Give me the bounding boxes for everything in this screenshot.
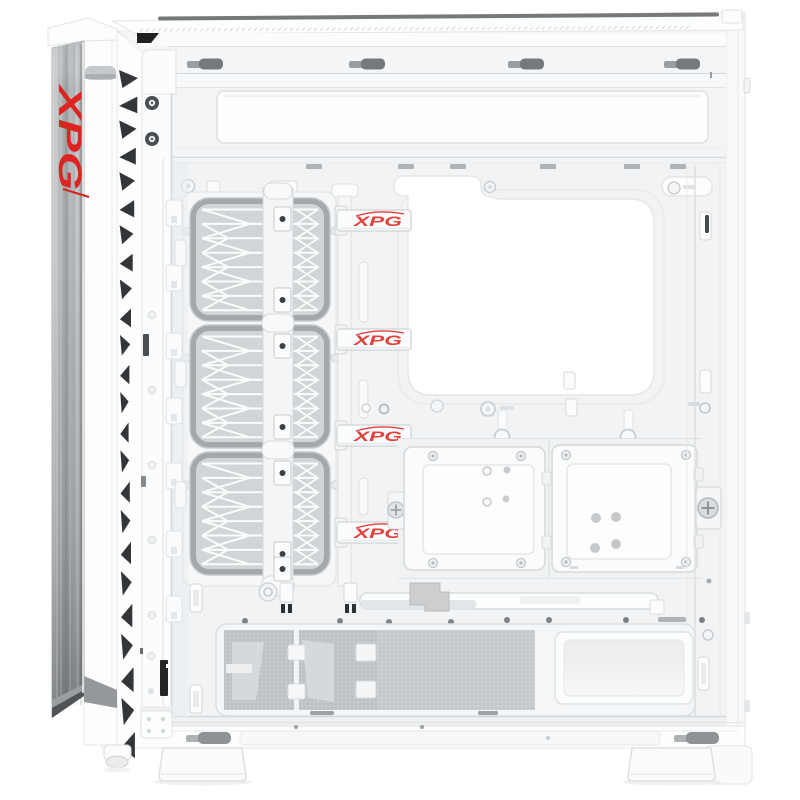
svg-text:XPG: XPG: [52, 83, 88, 190]
